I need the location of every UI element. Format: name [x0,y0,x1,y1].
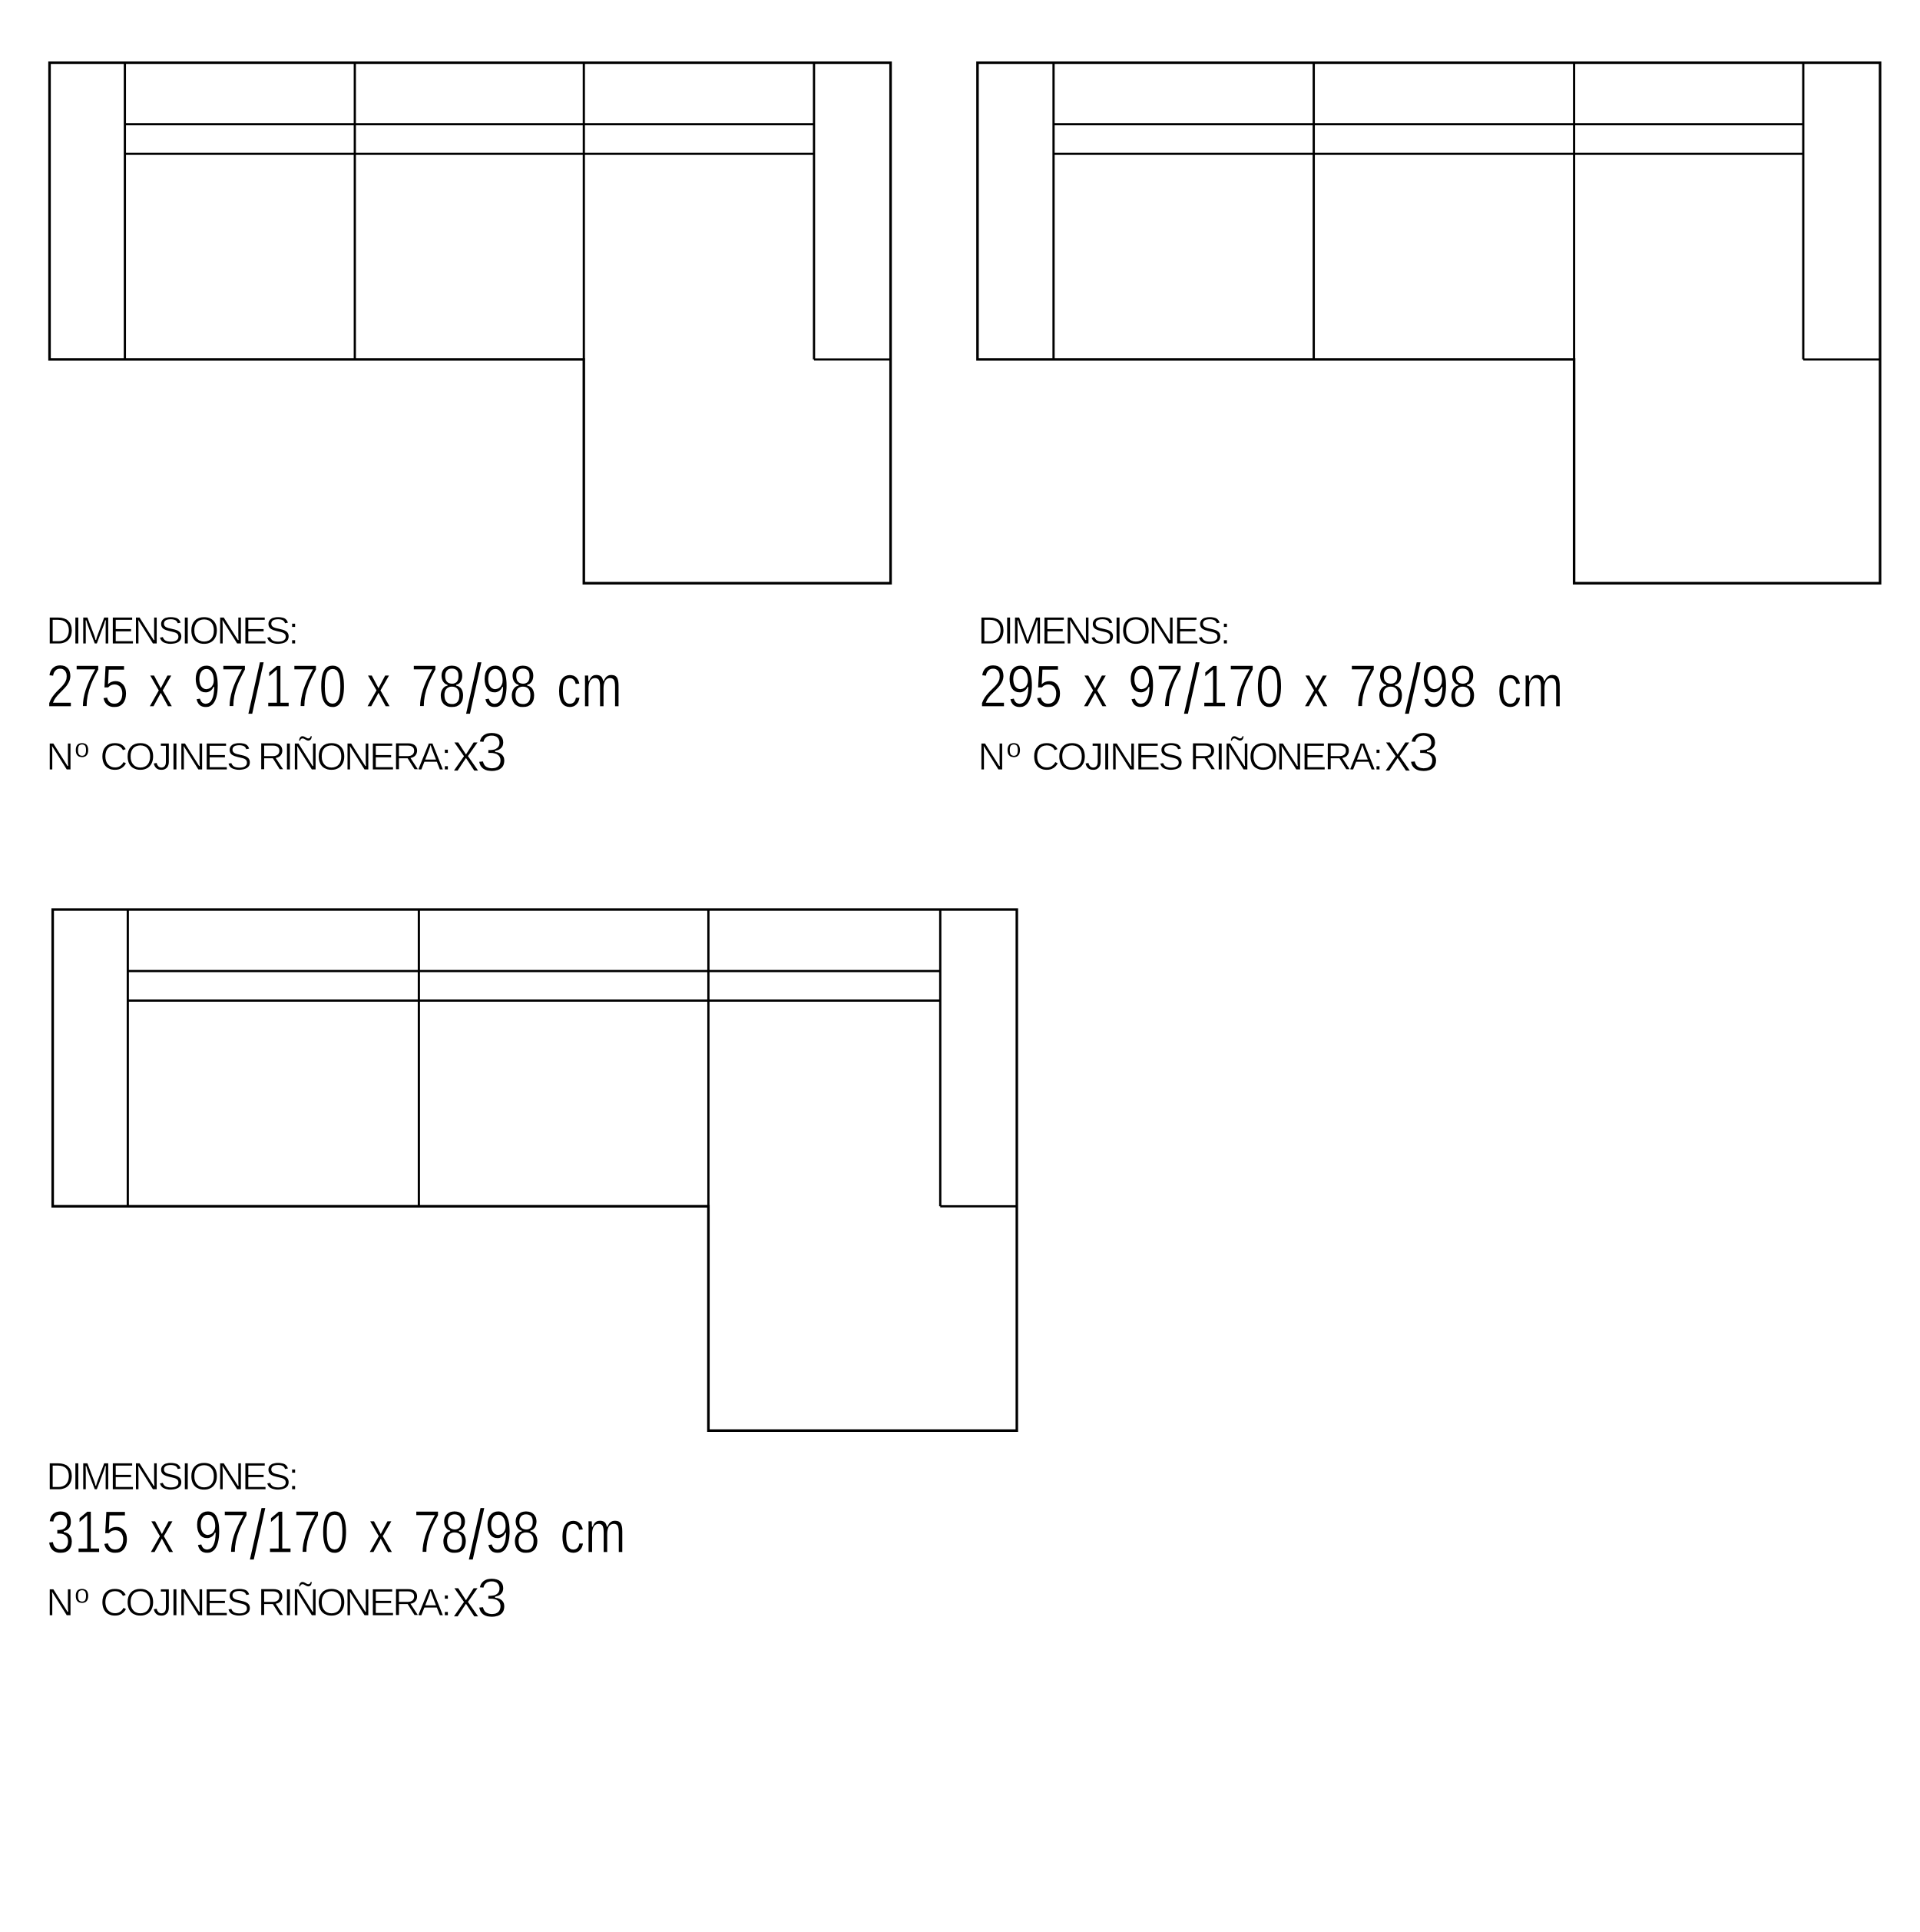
svg-text:315 x 97/170 x 78/98 cm: 315 x 97/170 x 78/98 cm [47,1495,626,1575]
svg-text:295 x 97/170 x 78/98 cm: 295 x 97/170 x 78/98 cm [979,649,1564,729]
svg-text:DIMENSIONES:: DIMENSIONES: [46,1455,296,1498]
svg-text:275 x 97/170 x 78/98 cm: 275 x 97/170 x 78/98 cm [46,649,622,729]
svg-text:DIMENSIONES:: DIMENSIONES: [978,609,1228,652]
svg-text:DIMENSIONES:: DIMENSIONES: [46,609,296,652]
